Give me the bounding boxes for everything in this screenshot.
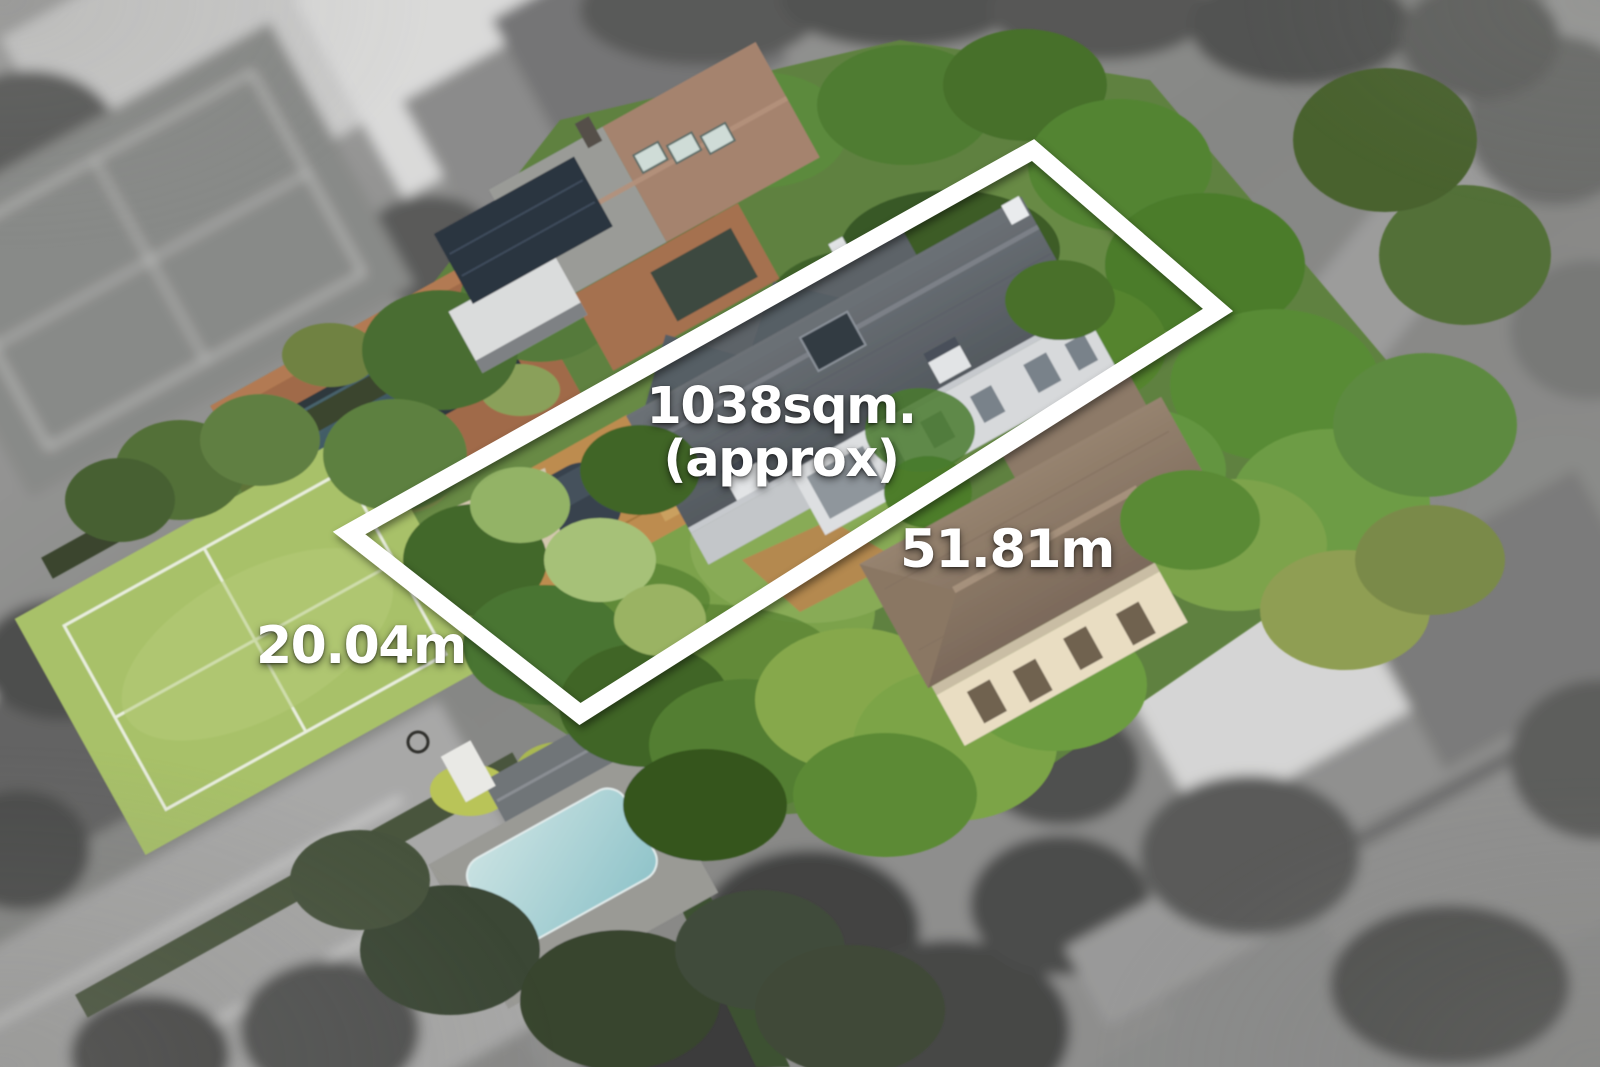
area-label-line2: (approx): [596, 433, 966, 486]
frontage-label: 20.04m: [256, 616, 466, 676]
side-length-label: 51.81m: [900, 519, 1114, 580]
aerial-photo: 1038sqm. (approx) 51.81m 20.04m: [0, 0, 1600, 1067]
area-label: 1038sqm. (approx): [596, 380, 966, 486]
area-label-line1: 1038sqm.: [596, 380, 966, 433]
aerial-photo-scene: [0, 0, 1600, 1067]
